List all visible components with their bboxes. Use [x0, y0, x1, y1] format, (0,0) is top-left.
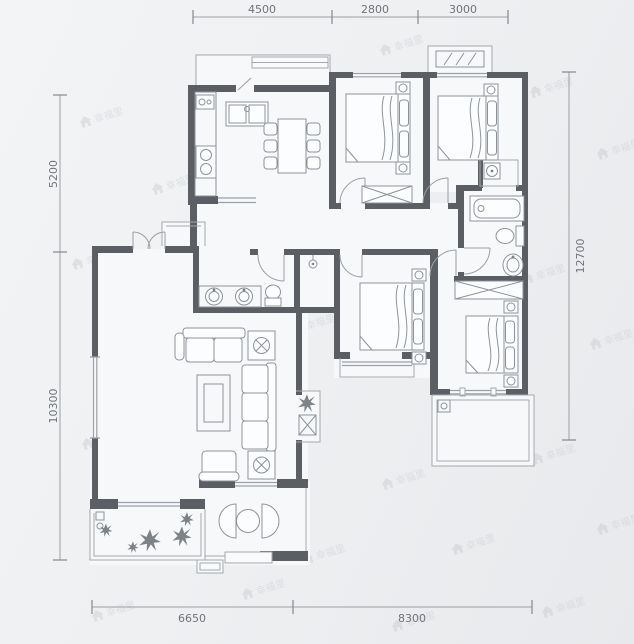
dim-label-bottom-1: 6650	[178, 612, 206, 625]
dining-chair	[307, 157, 320, 169]
dining-chair	[307, 123, 320, 135]
pillow	[488, 101, 497, 126]
dim-label-left-2: 10300	[47, 389, 60, 424]
dim-label-left-1: 5200	[47, 160, 60, 188]
pillow	[400, 131, 409, 157]
dining-table	[278, 119, 306, 173]
dim-label-top-3: 3000	[449, 3, 477, 16]
dimension-bottom: 6650 8300	[92, 600, 532, 625]
side-table	[248, 331, 275, 360]
side-table	[248, 451, 275, 479]
dining-chair	[307, 140, 320, 152]
dimension-right: 12700	[562, 72, 587, 440]
dining-chair	[264, 157, 277, 169]
three-seat-sofa	[242, 363, 276, 451]
balcony-seating	[219, 504, 279, 538]
entry-step	[197, 560, 223, 573]
pillow	[400, 100, 409, 126]
floor-plan-image: 幸福里	[0, 0, 634, 644]
pillow	[414, 289, 423, 314]
floor-plan-svg: 幸福里	[0, 0, 634, 644]
dining-area	[264, 119, 320, 173]
dining-chair	[264, 123, 277, 135]
dim-label-top-2: 2800	[361, 3, 389, 16]
armchair	[199, 451, 239, 481]
dimension-left: 5200 10300	[47, 95, 67, 560]
dim-label-bottom-2: 8300	[398, 612, 426, 625]
pillow	[506, 347, 515, 369]
dining-chair	[264, 140, 277, 152]
entry-double-door	[133, 232, 165, 249]
kitchen-sink	[226, 102, 268, 126]
loveseat-sofa	[175, 328, 245, 362]
pillow	[414, 319, 423, 344]
toilet	[265, 285, 281, 306]
round-table	[237, 510, 260, 533]
stove	[196, 146, 216, 178]
mid-bedroom-bed	[360, 269, 426, 364]
pillow	[488, 130, 497, 155]
dimension-top: 4500 2800 3000	[193, 3, 508, 24]
bathroom-sink	[503, 254, 523, 276]
dim-label-right-1: 12700	[574, 239, 587, 274]
dim-label-top-1: 4500	[248, 3, 276, 16]
balcony-step	[225, 552, 272, 563]
pillow	[506, 321, 515, 343]
